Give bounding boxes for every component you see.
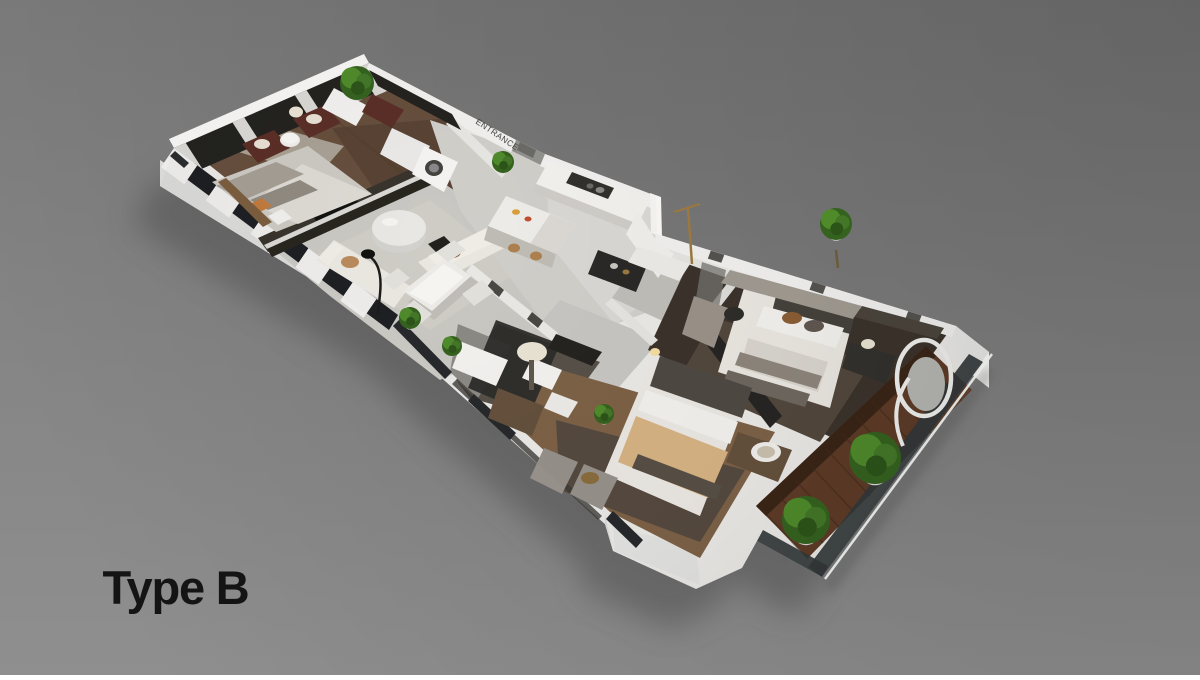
svg-text:Type B: Type B: [103, 561, 249, 614]
